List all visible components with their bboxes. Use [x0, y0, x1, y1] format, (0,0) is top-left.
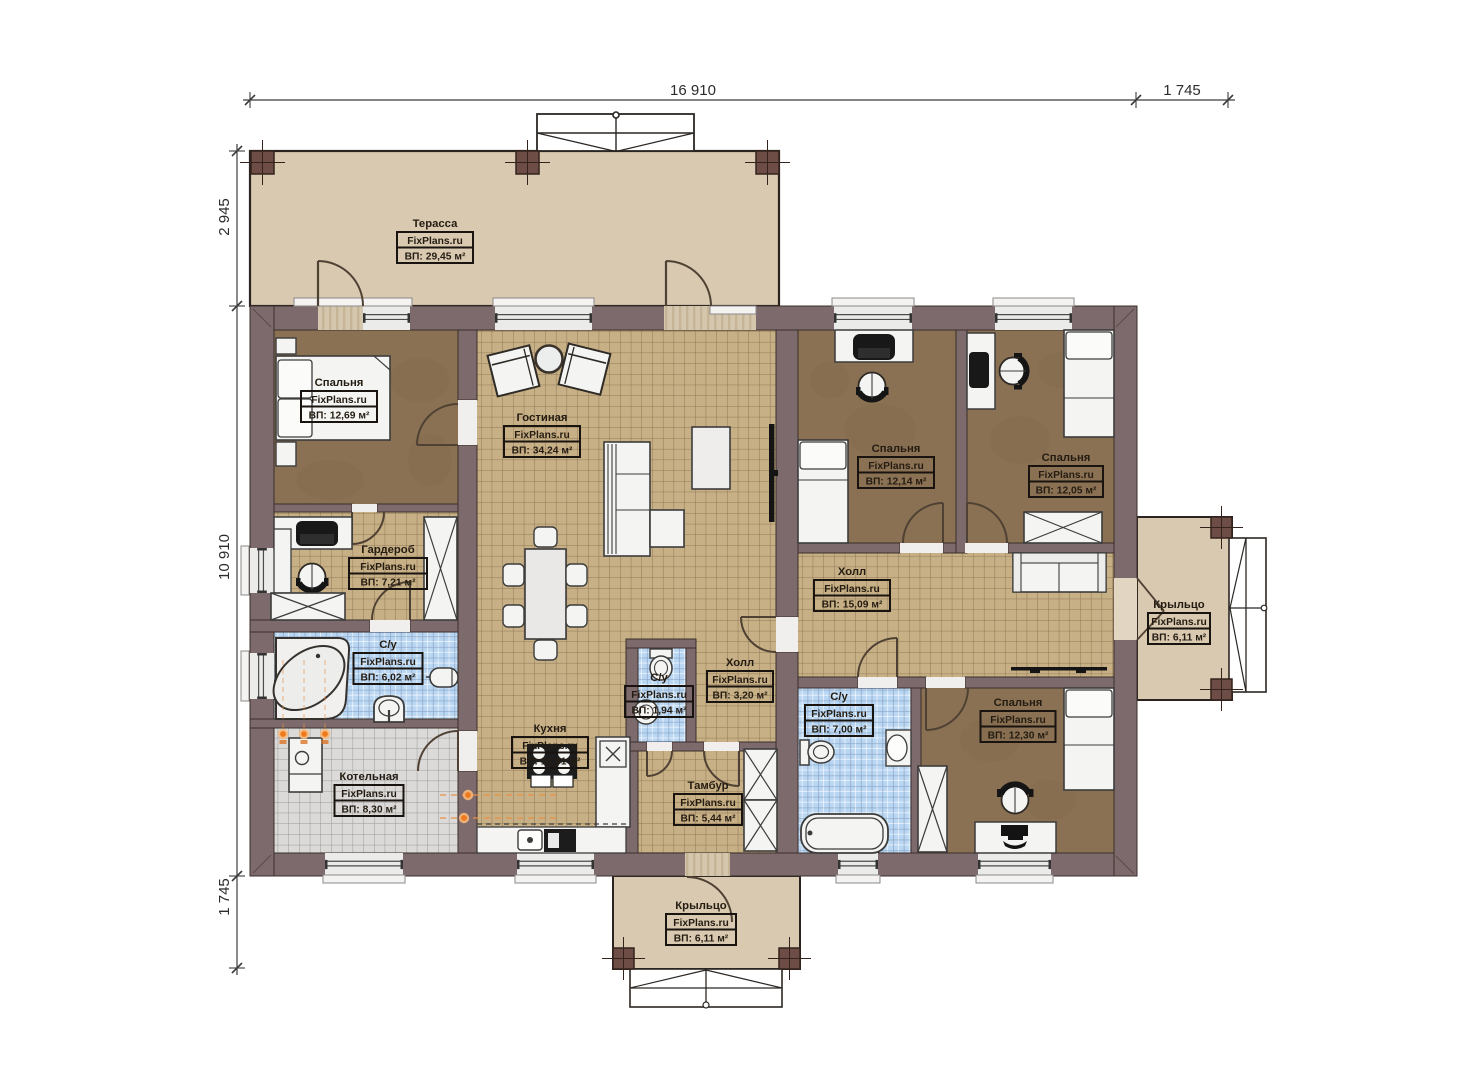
svg-text:ВП: 29,45 м²: ВП: 29,45 м² — [405, 252, 466, 263]
svg-text:Гостиная: Гостиная — [516, 412, 567, 424]
svg-text:16 910: 16 910 — [670, 82, 716, 99]
svg-text:ВП: 3,20 м²: ВП: 3,20 м² — [712, 691, 768, 702]
svg-text:10 910: 10 910 — [216, 534, 233, 580]
svg-text:Спальня: Спальня — [315, 377, 364, 389]
svg-text:FixPlans.ru: FixPlans.ru — [868, 461, 924, 472]
svg-text:Холл: Холл — [726, 657, 754, 669]
svg-text:С/у: С/у — [830, 691, 848, 703]
svg-text:Спальня: Спальня — [872, 443, 921, 455]
svg-text:ВП: 6,11 м²: ВП: 6,11 м² — [674, 934, 729, 945]
svg-text:ВП: 15,09 м²: ВП: 15,09 м² — [822, 600, 883, 611]
svg-text:FixPlans.ru: FixPlans.ru — [514, 430, 570, 441]
svg-text:Спальня: Спальня — [1042, 452, 1091, 464]
svg-text:С/у: С/у — [650, 672, 668, 684]
svg-text:FixPlans.ru: FixPlans.ru — [631, 690, 687, 701]
svg-text:FixPlans.ru: FixPlans.ru — [990, 715, 1046, 726]
svg-text:FixPlans.ru: FixPlans.ru — [712, 675, 768, 686]
svg-text:ВП: 1,94 м²: ВП: 1,94 м² — [631, 706, 687, 717]
svg-text:FixPlans.ru: FixPlans.ru — [341, 789, 397, 800]
svg-text:С/у: С/у — [379, 639, 397, 651]
svg-text:ВП: 12,69 м²: ВП: 12,69 м² — [309, 411, 370, 422]
svg-text:FixPlans.ru: FixPlans.ru — [673, 918, 729, 929]
svg-text:ВП: 6,11 м²: ВП: 6,11 м² — [1152, 633, 1207, 644]
svg-text:Кухня: Кухня — [533, 723, 566, 735]
svg-text:ВП: 6,02 м²: ВП: 6,02 м² — [360, 673, 416, 684]
svg-text:Тамбур: Тамбур — [688, 780, 729, 792]
svg-text:ВП: 12,14 м²: ВП: 12,14 м² — [866, 477, 927, 488]
svg-text:FixPlans.ru: FixPlans.ru — [811, 709, 867, 720]
svg-text:1 745: 1 745 — [1163, 82, 1201, 99]
svg-text:2 945: 2 945 — [216, 198, 233, 236]
svg-text:Спальня: Спальня — [994, 697, 1043, 709]
svg-text:ВП: 7,00 м²: ВП: 7,00 м² — [811, 725, 867, 736]
svg-text:FixPlans.ru: FixPlans.ru — [824, 584, 880, 595]
svg-text:Крыльцо: Крыльцо — [1153, 599, 1205, 611]
svg-text:ВП: 7,21 м²: ВП: 7,21 м² — [360, 578, 416, 589]
svg-text:FixPlans.ru: FixPlans.ru — [311, 395, 367, 406]
svg-text:ВП: 12,30 м²: ВП: 12,30 м² — [988, 731, 1049, 742]
svg-text:FixPlans.ru: FixPlans.ru — [522, 741, 578, 752]
svg-text:FixPlans.ru: FixPlans.ru — [1151, 617, 1207, 628]
svg-text:FixPlans.ru: FixPlans.ru — [680, 798, 736, 809]
svg-text:Котельная: Котельная — [339, 771, 398, 783]
svg-text:ВП: 8,30 м²: ВП: 8,30 м² — [341, 805, 397, 816]
svg-text:FixPlans.ru: FixPlans.ru — [360, 562, 416, 573]
svg-text:ВП: 10,81 м²: ВП: 10,81 м² — [520, 757, 581, 768]
svg-text:FixPlans.ru: FixPlans.ru — [360, 657, 416, 668]
svg-text:Крыльцо: Крыльцо — [675, 900, 727, 912]
svg-text:ВП: 34,24 м²: ВП: 34,24 м² — [512, 446, 573, 457]
svg-text:Гардероб: Гардероб — [361, 544, 414, 556]
svg-text:ВП: 12,05 м²: ВП: 12,05 м² — [1036, 486, 1097, 497]
svg-text:ВП: 5,44 м²: ВП: 5,44 м² — [680, 814, 736, 825]
svg-text:1 745: 1 745 — [216, 878, 233, 916]
svg-text:FixPlans.ru: FixPlans.ru — [407, 236, 463, 247]
svg-text:FixPlans.ru: FixPlans.ru — [1038, 470, 1094, 481]
svg-text:Терасса: Терасса — [413, 218, 459, 230]
svg-text:Холл: Холл — [838, 566, 866, 578]
